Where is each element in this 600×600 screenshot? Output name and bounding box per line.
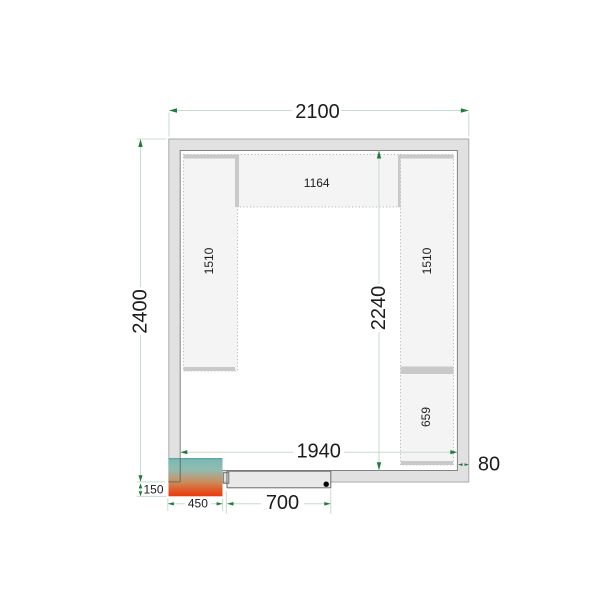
svg-text:1164: 1164	[304, 176, 330, 190]
svg-text:700: 700	[266, 492, 299, 514]
svg-text:1510: 1510	[202, 247, 216, 274]
svg-text:450: 450	[188, 496, 208, 510]
svg-text:659: 659	[419, 407, 433, 427]
svg-text:1510: 1510	[420, 247, 434, 274]
svg-text:80: 80	[478, 454, 500, 476]
svg-text:150: 150	[144, 482, 164, 496]
svg-text:2240: 2240	[368, 286, 390, 331]
svg-text:2400: 2400	[130, 289, 152, 334]
svg-text:1940: 1940	[296, 441, 341, 463]
svg-text:2100: 2100	[295, 101, 340, 123]
